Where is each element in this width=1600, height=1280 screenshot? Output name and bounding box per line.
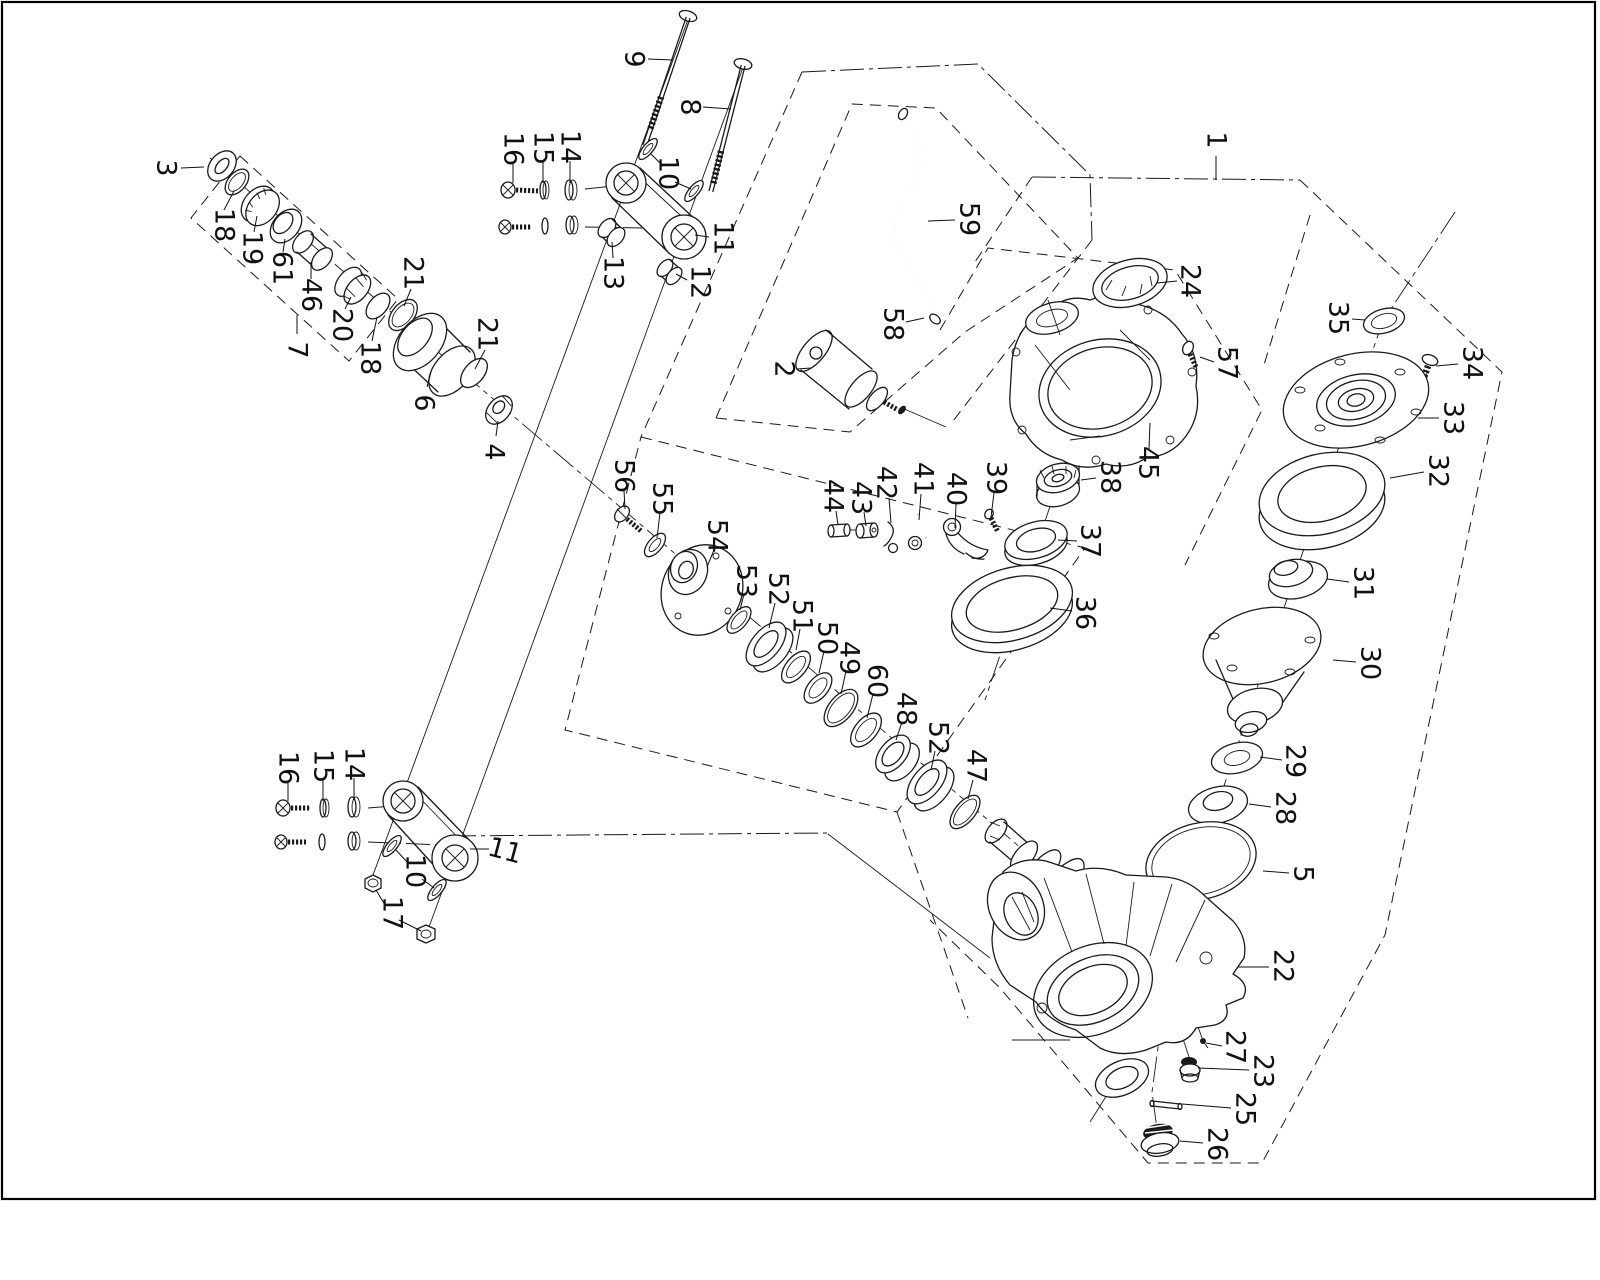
callout-19: 19 [237,231,268,265]
leader-line [648,59,673,60]
input-shaft-parts-group [202,145,518,429]
callout-9: 9 [619,50,650,67]
bolt-9 [643,8,698,145]
callout-35: 35 [1323,301,1354,335]
leader-line [1390,472,1424,478]
callout-3: 3 [151,159,182,176]
lower-bracket-group [275,781,478,943]
callout-16: 16 [273,751,304,785]
callout-28: 28 [1270,791,1301,825]
callout-61: 61 [267,251,298,285]
callout-15: 15 [308,749,339,783]
leader-line [1180,1141,1203,1143]
leader-line [1436,364,1458,366]
callout-27: 27 [1220,1030,1251,1064]
oil-seal [1090,1051,1155,1105]
leader-line [1263,871,1289,873]
callout-1: 1 [1201,131,1232,148]
exploded-parts-diagram: 1234567891011121314151616151410111718196… [0,0,1600,1280]
ring-35 [1361,304,1408,339]
callout-32: 32 [1423,454,1454,488]
callout-47: 47 [961,749,992,783]
bearing-32 [1250,440,1394,563]
callout-29: 29 [1280,744,1311,778]
callout-21: 21 [472,317,503,351]
callout-10: 10 [400,854,431,888]
bolt-56 [612,503,641,531]
callout-26: 26 [1202,1127,1233,1161]
callout-13: 13 [598,256,629,290]
screw-39 [983,508,998,532]
callout-58: 58 [878,307,909,341]
leader-line [1327,579,1349,582]
callout-7: 7 [282,341,313,358]
shift-parts-group [828,508,998,559]
leader-line [372,317,377,341]
callout-18: 18 [355,341,386,375]
drain-plug-26 [1140,1122,1181,1159]
callout-60: 60 [862,664,893,698]
callout-59: 59 [954,202,985,236]
callout-30: 30 [1355,646,1386,680]
callout-55: 55 [647,482,678,516]
callout-6: 6 [409,394,440,411]
callout-40: 40 [941,472,972,506]
callout-36: 36 [1070,596,1101,630]
callout-52: 52 [763,572,794,606]
callout-5: 5 [1288,865,1319,882]
callout-labels: 1234567891011121314151616151410111718196… [151,50,1488,1161]
callout-33: 33 [1438,401,1469,435]
callout-44: 44 [818,479,849,513]
nut-17b [417,925,435,943]
leader-line [889,498,891,523]
leader-line [181,167,204,168]
callout-20: 20 [327,308,358,342]
leader-line [1249,804,1271,807]
callout-11: 11 [484,832,525,871]
washer-29 [1208,737,1266,779]
callout-41: 41 [908,462,939,496]
drum-38 [1033,458,1083,511]
callout-31: 31 [1348,566,1379,600]
breather-hose-59 [894,107,942,326]
leader-line [1081,478,1096,480]
callout-56: 56 [609,459,640,493]
callout-23: 23 [1248,1054,1279,1088]
callout-15: 15 [528,131,559,165]
ring-47 [944,790,985,833]
leader-line [1260,757,1282,760]
pin-44 [828,524,858,537]
parts-catalog-page: 1234567891011121314151616151410111718196… [0,0,1600,1280]
spring-clip-42 [884,522,898,553]
bushing-13 [595,215,629,250]
hub-30 [1195,596,1329,738]
nut-17a [365,875,381,892]
callout-45: 45 [1133,446,1164,480]
callout-37: 37 [1075,524,1106,558]
leader-line [1333,660,1356,662]
callout-38: 38 [1095,460,1126,494]
pin-25 [1150,1101,1182,1110]
seal-31 [1265,555,1332,605]
callout-39: 39 [981,461,1012,495]
callout-48: 48 [891,692,922,726]
shift-fork-40 [944,519,989,560]
link-41 [909,515,927,550]
callout-17: 17 [377,896,408,930]
callout-46: 46 [296,278,327,312]
callout-25: 25 [1230,1092,1261,1126]
leader-line [1198,1068,1249,1070]
callout-57: 57 [1212,346,1243,380]
leader-line [928,220,955,221]
housing-cover-45 [1010,250,1198,467]
callout-2: 2 [769,360,800,377]
callout-43: 43 [846,481,877,515]
bolt-16-washers-lower [275,797,360,850]
sleeve-43 [856,523,878,538]
callout-34: 34 [1457,346,1488,380]
hose-clip-58 [928,312,942,326]
callout-52: 52 [923,721,954,755]
callout-4: 4 [479,443,510,460]
callout-21: 21 [398,256,429,290]
callout-18: 18 [209,208,240,242]
leader-line [1182,1104,1231,1108]
leader-line [703,107,731,109]
plug-23 [1180,1057,1200,1082]
callout-11: 11 [708,221,739,255]
callout-22: 22 [1268,949,1299,983]
callout-54: 54 [702,519,733,553]
callout-14: 14 [339,747,370,781]
callout-12: 12 [685,265,716,299]
callout-10: 10 [653,156,684,190]
callout-16: 16 [498,132,529,166]
bushing-12 [654,256,685,287]
callout-53: 53 [731,564,762,598]
bolt-16-washers [499,180,578,234]
ring-37 [1000,514,1071,572]
flange-33 [1273,337,1439,462]
callout-8: 8 [675,98,706,115]
splined-gear-4 [480,391,517,430]
bolt-8 [709,57,753,192]
callout-24: 24 [1175,264,1206,298]
